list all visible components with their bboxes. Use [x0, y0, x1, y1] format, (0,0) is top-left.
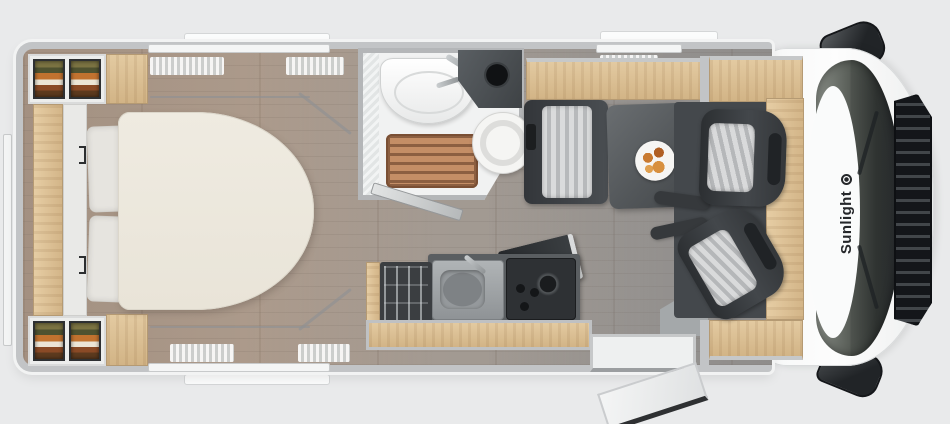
refrigerator [380, 262, 432, 324]
cooktop-knob-icon [516, 284, 525, 293]
window-bottom [148, 363, 330, 372]
brand-logo-icon [841, 174, 852, 185]
drop-bed-rail [150, 96, 310, 98]
wardrobe-cell [69, 321, 101, 361]
wardrobe-shelves-bottom [28, 316, 106, 366]
window-top-right [596, 44, 682, 53]
motorhome-floorplan-canvas: Sunlight [0, 0, 950, 424]
plate-of-food [634, 140, 675, 181]
brand-name: Sunlight [838, 191, 855, 254]
wardrobe-cell [69, 59, 101, 99]
wall-divider [700, 56, 709, 102]
sink-bowl [440, 270, 485, 308]
toilet-seat [480, 120, 526, 166]
worktop-edge [366, 320, 592, 350]
folded-clothes [35, 61, 63, 97]
cabinet-handle-icon [79, 256, 86, 274]
passenger-seat [698, 109, 787, 208]
brand-lettering: Sunlight [838, 139, 854, 289]
tiled-wall [363, 53, 379, 195]
shower-grate [386, 134, 478, 188]
window-top-left [148, 44, 330, 53]
seat-headrest [767, 133, 782, 185]
roof-rail-bottom [184, 374, 330, 385]
curtain [298, 344, 350, 362]
wardrobe-cell [33, 59, 65, 99]
vanity-sink-hole [484, 62, 510, 88]
curtain [170, 344, 234, 362]
cooktop [506, 258, 576, 320]
folded-clothes [71, 323, 99, 359]
seat-cushion [707, 123, 755, 193]
curtain [286, 57, 344, 75]
bench-cushion [542, 106, 592, 198]
kitchen-side-panel [366, 262, 380, 324]
fridge-racks [384, 266, 428, 320]
wall-divider [700, 320, 709, 366]
seatbelt-bracket-icon [526, 124, 536, 150]
overhead-cabinet-bottom [106, 314, 148, 366]
folded-clothes [35, 323, 63, 359]
overhead-locker [526, 58, 702, 100]
cooktop-knob-icon [520, 302, 529, 311]
bench-seat [524, 100, 608, 204]
drop-bed-rail [150, 326, 310, 328]
dashboard-wood-top [709, 56, 803, 102]
headboard-cabinet [63, 104, 87, 316]
rear-window [3, 134, 12, 346]
cooktop-knob-icon [530, 288, 539, 297]
overhead-cabinet-top [106, 54, 148, 104]
shower-slats [390, 138, 474, 184]
folded-clothes [71, 61, 99, 97]
plate [634, 140, 675, 181]
front-grille [894, 94, 932, 326]
dashboard-wood-bottom [709, 320, 803, 360]
cabinet-handle-icon [79, 146, 86, 164]
curtain [150, 57, 224, 75]
wardrobe-cell [33, 321, 65, 361]
side-shelf [33, 104, 63, 316]
kitchen-sink [432, 260, 504, 320]
wardrobe-shelves-top [28, 54, 106, 104]
